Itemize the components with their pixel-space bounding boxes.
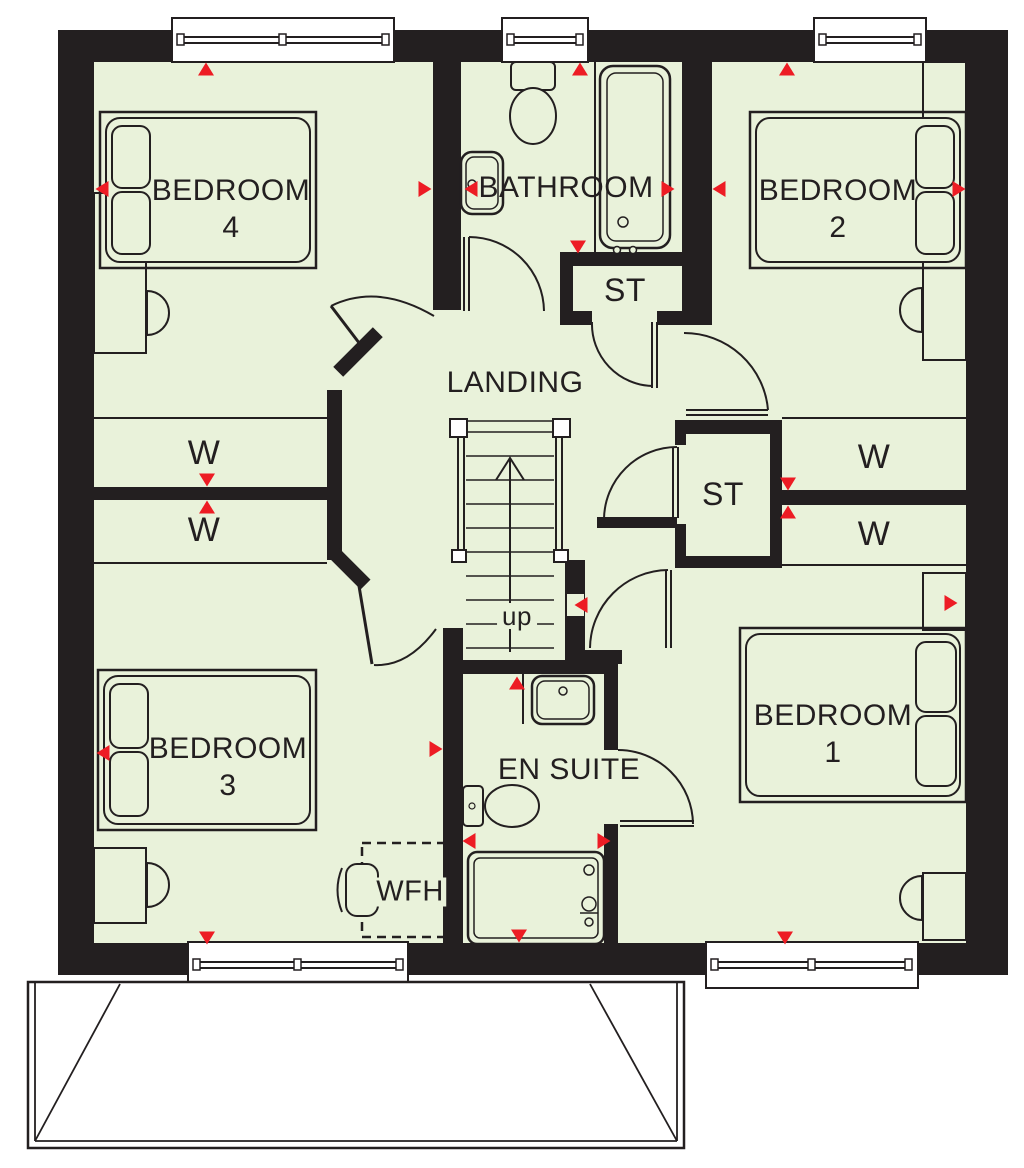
ensuite-basin-icon bbox=[532, 676, 594, 724]
wardrobe-label-right-top: W bbox=[858, 440, 891, 474]
newel-post bbox=[450, 419, 467, 437]
room-number-bedroom4: 4 bbox=[222, 213, 239, 243]
ensuite-toilet-icon bbox=[463, 785, 539, 827]
room-label-ensuite: EN SUITE bbox=[498, 755, 640, 785]
wardrobe-label-left-top: W bbox=[188, 436, 221, 470]
room-label-landing: LANDING bbox=[447, 368, 584, 398]
room-label-bedroom1: BEDROOM bbox=[754, 701, 913, 731]
window-bathroom bbox=[502, 18, 588, 62]
room-label-storage-top: ST bbox=[604, 274, 646, 306]
room-number-bedroom2: 2 bbox=[829, 213, 846, 243]
chair-icon bbox=[346, 864, 378, 916]
wardrobe-label-left-bottom: W bbox=[188, 513, 221, 547]
room-label-bathroom: BATHROOM bbox=[478, 173, 653, 203]
room-number-bedroom1: 1 bbox=[824, 738, 841, 768]
window-bedroom2 bbox=[814, 18, 926, 62]
room-label-bedroom3: BEDROOM bbox=[149, 734, 308, 764]
window-bedroom1 bbox=[706, 942, 918, 988]
roof-outline bbox=[28, 982, 684, 1148]
floor-plan: BEDROOM 4 BATHROOM BEDROOM 2 ST LANDING … bbox=[0, 0, 1024, 1168]
room-label-bedroom4: BEDROOM bbox=[152, 176, 311, 206]
stairs-up-label: up bbox=[497, 603, 537, 629]
newel-post bbox=[553, 419, 570, 437]
toilet-icon bbox=[510, 62, 556, 144]
wfh-desk-label: WFH bbox=[374, 878, 446, 907]
wardrobe-label-right-bottom: W bbox=[858, 517, 891, 551]
room-label-bedroom2: BEDROOM bbox=[759, 176, 918, 206]
window-bedroom4 bbox=[172, 18, 394, 62]
room-number-bedroom3: 3 bbox=[219, 771, 236, 801]
room-label-storage-middle: ST bbox=[702, 478, 744, 510]
